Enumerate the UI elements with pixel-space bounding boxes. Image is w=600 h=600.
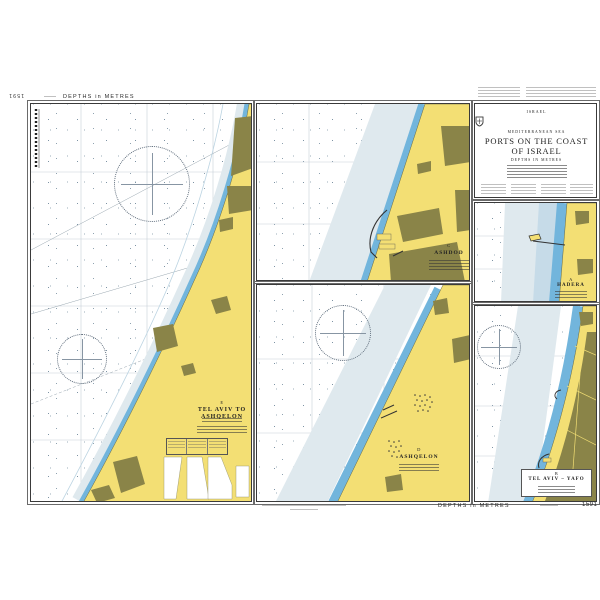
nautical-chart-sheet: 1591 DEPTHS in METRES [0, 0, 600, 600]
margin-note [526, 87, 596, 99]
panel-title-ashqelon: ASHQELON [389, 454, 449, 460]
panel-title-tel-aviv-yafo: TEL AVIV – YAFO [522, 477, 591, 483]
chart-title-line2: OF ISRAEL [475, 147, 597, 157]
scale-note [399, 464, 439, 473]
source-legend-table [166, 438, 228, 455]
projection-note [197, 426, 247, 435]
panel-tel-aviv-to-ashqelon: E TEL AVIV TO ASHQELON [30, 103, 252, 502]
scale-note [538, 486, 575, 494]
panel-title-ashdod: ASHDOD [419, 250, 470, 256]
title-notes [507, 165, 567, 180]
panel-tel-aviv-yafo: B TEL AVIV – YAFO [474, 305, 597, 502]
panel-title-hadera: HADERA [549, 283, 593, 289]
panel-letter: D [389, 447, 449, 452]
margin-note [478, 87, 520, 99]
scale-note [429, 260, 469, 272]
title-block: ISRAEL MEDITERRANEAN SEA PORTS ON THE CO… [474, 103, 597, 198]
publication-note [290, 509, 318, 511]
panel-ashdod: C ASHDOD [256, 103, 470, 281]
depths-label-top: DEPTHS in METRES [63, 94, 135, 100]
telaviv-title-box: B TEL AVIV – YAFO [521, 469, 592, 497]
title-note-col2 [511, 184, 536, 196]
panel-letter: C [419, 243, 470, 248]
scale-note [202, 418, 242, 424]
title-depths-note: DEPTHS IN METRES [475, 158, 597, 162]
crest-icon [475, 116, 484, 127]
compass-rose-icon [57, 334, 107, 384]
chart-number-top: 1591 [8, 92, 24, 98]
chart-number-bottom: 1591 [582, 502, 597, 508]
title-sea: MEDITERRANEAN SEA [475, 130, 597, 134]
compass-rose-icon [477, 325, 521, 369]
title-note-col4 [570, 184, 593, 196]
bottom-margin-note [540, 505, 558, 508]
compass-rose-icon [114, 146, 190, 222]
title-note-col3 [541, 184, 566, 196]
compass-rose-icon [315, 305, 371, 361]
top-margin-note [44, 96, 56, 99]
panel-hadera: A HADERA [474, 202, 597, 302]
title-note-col1 [481, 184, 506, 196]
depths-label-bottom: DEPTHS in METRES [438, 503, 510, 509]
scale-note [555, 291, 587, 300]
copyright-note [262, 505, 346, 507]
panel-letter: A [549, 277, 593, 282]
panel-letter: B [522, 471, 591, 476]
title-country: ISRAEL [475, 110, 597, 115]
panel-ashqelon: D ASHQELON [256, 284, 470, 502]
panel-letter: E [177, 400, 252, 405]
